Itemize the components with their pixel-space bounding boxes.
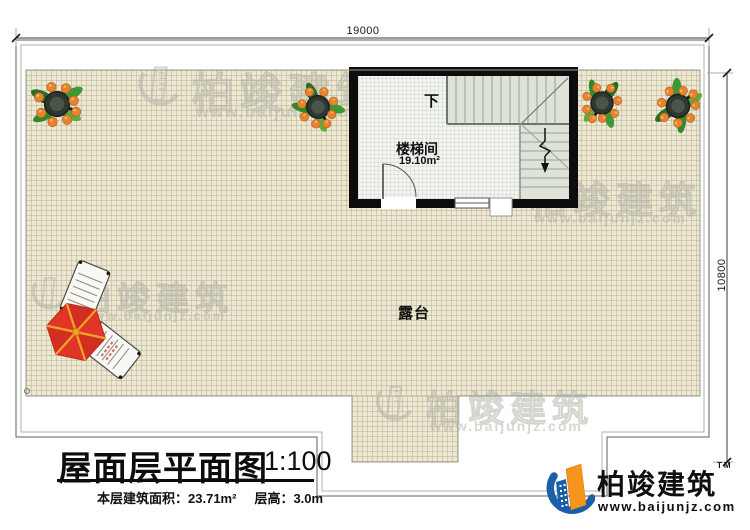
dimension-top: 19000 bbox=[338, 25, 388, 37]
floor-height-value: 3.0m bbox=[293, 491, 323, 506]
brand-name-text: 柏竣建筑 bbox=[597, 469, 717, 500]
stair-direction-label: 下 bbox=[424, 90, 439, 111]
page-title: 屋面层平面图 bbox=[58, 441, 268, 490]
floor-area-value: 23.71m² bbox=[188, 491, 236, 506]
dimension-right: 10800 bbox=[705, 253, 739, 297]
brand-website: www.baijunjz.com bbox=[598, 499, 736, 514]
floor-plan-canvas: 柏竣建筑 www.baijunjz.com 柏竣建筑 www.baijunjz.… bbox=[0, 0, 750, 530]
title-underline bbox=[57, 479, 314, 482]
brand-logo-icon bbox=[543, 459, 595, 521]
floor-stats: 本层建筑面积：23.71m²层高：3.0m bbox=[97, 488, 323, 507]
stairwell-area: 19.10m² bbox=[399, 155, 440, 167]
brand-trademark: TM bbox=[717, 461, 733, 470]
terrace-label: 露台 bbox=[398, 302, 430, 323]
drawing-scale: 1:100 bbox=[264, 446, 332, 477]
floor-area-label: 本层建筑面积： bbox=[97, 491, 188, 506]
brand-name: 柏竣建筑TM bbox=[597, 463, 733, 503]
floor-height-label: 层高： bbox=[254, 491, 293, 506]
